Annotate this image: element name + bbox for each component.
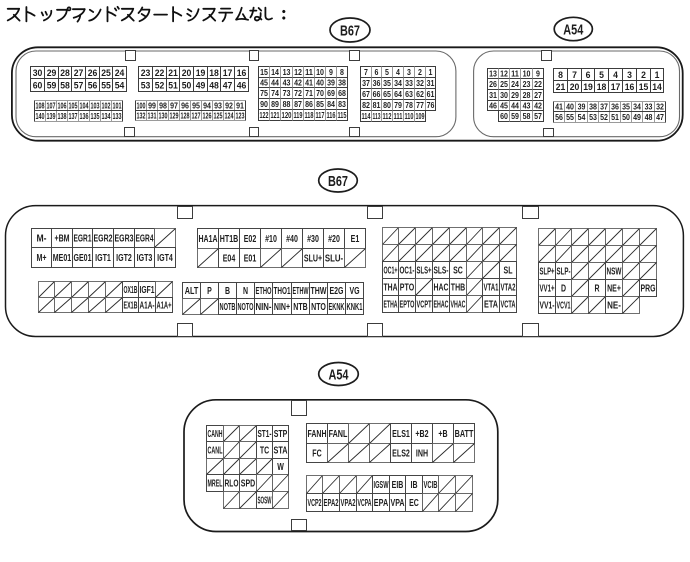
svg-text:64: 64 xyxy=(394,89,402,99)
svg-text:69: 69 xyxy=(327,88,335,98)
svg-text:37: 37 xyxy=(362,78,370,88)
svg-text:EGR4: EGR4 xyxy=(136,234,154,245)
svg-text:53: 53 xyxy=(589,112,597,122)
svg-text:SC: SC xyxy=(453,266,463,277)
svg-text:123: 123 xyxy=(236,110,245,120)
svg-text:IGSW: IGSW xyxy=(374,480,389,491)
svg-text:136: 136 xyxy=(80,111,89,121)
svg-text:STA: STA xyxy=(274,446,288,457)
svg-text:1: 1 xyxy=(429,67,433,77)
svg-text:4: 4 xyxy=(613,70,619,80)
svg-text:ALT: ALT xyxy=(185,286,199,297)
svg-text:A54: A54 xyxy=(329,367,349,384)
svg-text:SLS+: SLS+ xyxy=(417,266,432,277)
svg-text:54: 54 xyxy=(578,112,586,122)
svg-text:88: 88 xyxy=(283,99,291,109)
svg-text:127: 127 xyxy=(192,110,201,120)
svg-text:P: P xyxy=(207,286,212,297)
svg-text:42: 42 xyxy=(294,77,302,87)
svg-text:IGT1: IGT1 xyxy=(95,253,111,264)
svg-text:96: 96 xyxy=(181,100,189,110)
svg-text:81: 81 xyxy=(373,100,381,110)
svg-text:VHAC: VHAC xyxy=(451,300,466,311)
svg-text:VV1-: VV1- xyxy=(540,301,555,312)
svg-text:91: 91 xyxy=(236,100,244,110)
svg-text:33: 33 xyxy=(405,78,413,88)
svg-text:118: 118 xyxy=(305,110,314,120)
svg-text:93: 93 xyxy=(214,100,222,110)
svg-text:106: 106 xyxy=(58,100,67,110)
svg-text:11: 11 xyxy=(305,67,313,77)
svg-text:VTA1: VTA1 xyxy=(484,283,499,294)
svg-text:70: 70 xyxy=(316,88,324,98)
svg-text:5: 5 xyxy=(599,70,604,80)
svg-text:85: 85 xyxy=(316,99,324,109)
svg-text:EIB: EIB xyxy=(392,480,404,491)
svg-text:ELS1: ELS1 xyxy=(392,429,410,440)
svg-text:EPTO: EPTO xyxy=(400,300,415,311)
svg-text:59: 59 xyxy=(47,80,57,90)
svg-text:119: 119 xyxy=(294,110,303,120)
svg-text:34: 34 xyxy=(633,101,641,111)
svg-text:83: 83 xyxy=(338,99,346,109)
svg-text:77: 77 xyxy=(416,100,424,110)
svg-text:EC: EC xyxy=(409,498,419,509)
svg-text:26: 26 xyxy=(88,68,98,78)
svg-text:1: 1 xyxy=(655,70,660,80)
svg-text:ELS2: ELS2 xyxy=(392,449,410,460)
svg-text:68: 68 xyxy=(338,88,346,98)
svg-text:M-: M- xyxy=(36,234,46,245)
svg-text:45: 45 xyxy=(260,77,268,87)
svg-text:B67: B67 xyxy=(328,173,348,190)
svg-text:EGR1: EGR1 xyxy=(74,234,92,245)
svg-text:18: 18 xyxy=(209,68,219,78)
svg-text:NTO: NTO xyxy=(311,302,326,313)
svg-text:HT1B: HT1B xyxy=(220,234,238,245)
svg-text:98: 98 xyxy=(159,100,167,110)
svg-text:37: 37 xyxy=(600,101,608,111)
svg-text:54: 54 xyxy=(115,80,125,90)
svg-text:ETHW: ETHW xyxy=(293,286,309,297)
svg-text:114: 114 xyxy=(362,111,371,121)
svg-text:SPD: SPD xyxy=(241,479,255,490)
svg-text:56: 56 xyxy=(555,112,563,122)
svg-text:122: 122 xyxy=(260,110,269,120)
svg-text:SL: SL xyxy=(504,266,513,277)
svg-text:NIN-: NIN- xyxy=(256,302,272,313)
svg-text:45: 45 xyxy=(500,100,508,110)
svg-text:+B: +B xyxy=(438,429,447,440)
svg-text:7: 7 xyxy=(364,67,368,77)
svg-text:NOTO: NOTO xyxy=(238,302,254,313)
svg-text:17: 17 xyxy=(223,68,233,78)
svg-text:6: 6 xyxy=(586,70,591,80)
svg-text:63: 63 xyxy=(405,89,413,99)
svg-text:31: 31 xyxy=(489,90,497,100)
svg-text:12: 12 xyxy=(294,67,302,77)
svg-text:62: 62 xyxy=(416,89,424,99)
svg-text:103: 103 xyxy=(91,100,100,110)
svg-text:18: 18 xyxy=(597,82,607,92)
svg-text:EPA2: EPA2 xyxy=(324,498,339,509)
svg-text:VTA2: VTA2 xyxy=(501,283,516,294)
svg-text:125: 125 xyxy=(214,110,223,120)
svg-text:E2G: E2G xyxy=(329,286,343,297)
svg-text:25: 25 xyxy=(500,79,508,89)
svg-text:128: 128 xyxy=(181,110,190,120)
svg-text:101: 101 xyxy=(113,100,122,110)
svg-text:OC1+: OC1+ xyxy=(384,266,398,277)
svg-text:135: 135 xyxy=(91,111,100,121)
svg-text:28: 28 xyxy=(523,90,531,100)
svg-text:SLP+: SLP+ xyxy=(540,267,555,278)
svg-text:13: 13 xyxy=(489,68,497,78)
svg-text:SLP-: SLP- xyxy=(557,267,571,278)
svg-text:8: 8 xyxy=(340,67,344,77)
svg-text:21: 21 xyxy=(168,68,178,78)
svg-text:FANL: FANL xyxy=(329,429,348,440)
svg-text:#10: #10 xyxy=(265,234,277,245)
svg-text:VCPT: VCPT xyxy=(417,300,432,311)
svg-text:124: 124 xyxy=(225,110,234,120)
svg-text:60: 60 xyxy=(33,80,43,90)
svg-text:104: 104 xyxy=(80,100,89,110)
svg-text:82: 82 xyxy=(362,100,370,110)
svg-text:GE01: GE01 xyxy=(74,253,92,264)
svg-text:HAC: HAC xyxy=(434,283,449,294)
svg-text:VCIB: VCIB xyxy=(424,480,438,491)
svg-text:BATT: BATT xyxy=(455,429,474,440)
svg-text:22: 22 xyxy=(155,68,165,78)
svg-text:IGF1: IGF1 xyxy=(140,285,155,296)
svg-text:102: 102 xyxy=(102,100,111,110)
svg-text:71: 71 xyxy=(305,88,313,98)
svg-text:6: 6 xyxy=(375,67,379,77)
svg-text:57: 57 xyxy=(534,111,542,121)
svg-text:41: 41 xyxy=(555,101,563,111)
svg-text:OX1B: OX1B xyxy=(124,285,138,296)
svg-text:48: 48 xyxy=(209,80,219,90)
svg-text:M+: M+ xyxy=(36,253,46,264)
svg-text:D: D xyxy=(561,284,566,295)
svg-text:A1A-: A1A- xyxy=(140,301,155,312)
svg-text:EX1B: EX1B xyxy=(124,301,138,312)
svg-text:32: 32 xyxy=(656,101,664,111)
svg-text:78: 78 xyxy=(405,100,413,110)
svg-text:A1A+: A1A+ xyxy=(157,301,172,312)
svg-text:8: 8 xyxy=(558,70,563,80)
svg-text:ST1-: ST1- xyxy=(258,429,272,440)
svg-text:B: B xyxy=(225,286,230,297)
svg-text:53: 53 xyxy=(141,80,151,90)
svg-text:97: 97 xyxy=(170,100,178,110)
svg-text:IGT3: IGT3 xyxy=(137,253,153,264)
svg-text:46: 46 xyxy=(489,100,497,110)
svg-text:SLU+: SLU+ xyxy=(304,254,322,265)
svg-text:44: 44 xyxy=(511,100,519,110)
svg-text:SLU-: SLU- xyxy=(325,254,343,265)
svg-text:67: 67 xyxy=(362,89,370,99)
svg-text:90: 90 xyxy=(260,99,268,109)
svg-text:20: 20 xyxy=(182,68,192,78)
svg-text:RLO: RLO xyxy=(225,479,239,490)
svg-text:108: 108 xyxy=(36,100,45,110)
svg-text:20: 20 xyxy=(570,82,580,92)
svg-text:SOSW: SOSW xyxy=(258,496,272,507)
svg-text:VCV1: VCV1 xyxy=(557,301,571,312)
svg-text:NE-: NE- xyxy=(607,301,621,312)
svg-text:86: 86 xyxy=(305,99,313,109)
svg-text:27: 27 xyxy=(534,90,542,100)
svg-text:VCP2: VCP2 xyxy=(308,498,322,509)
svg-text:87: 87 xyxy=(294,99,302,109)
svg-text:32: 32 xyxy=(416,78,424,88)
svg-text:THO1: THO1 xyxy=(274,286,291,297)
svg-text:79: 79 xyxy=(394,100,402,110)
svg-text:2: 2 xyxy=(641,70,646,80)
svg-text:3: 3 xyxy=(407,67,411,77)
svg-text:89: 89 xyxy=(271,99,279,109)
svg-text:NE+: NE+ xyxy=(607,284,621,295)
svg-text:39: 39 xyxy=(327,77,335,87)
svg-text:THW: THW xyxy=(311,286,327,297)
svg-text:58: 58 xyxy=(523,111,531,121)
svg-text:29: 29 xyxy=(47,68,57,78)
svg-text:ETA: ETA xyxy=(484,300,498,311)
svg-text:24: 24 xyxy=(511,79,519,89)
svg-text:NSW: NSW xyxy=(607,267,622,278)
svg-text:NTB: NTB xyxy=(293,302,307,313)
svg-text:120: 120 xyxy=(282,110,292,120)
svg-text:34: 34 xyxy=(394,78,402,88)
svg-text:51: 51 xyxy=(611,112,619,122)
svg-text:48: 48 xyxy=(645,112,653,122)
svg-text:IGT2: IGT2 xyxy=(116,253,132,264)
svg-text:117: 117 xyxy=(316,110,325,120)
svg-text:56: 56 xyxy=(88,80,98,90)
svg-text:109: 109 xyxy=(416,111,425,121)
svg-text:E1: E1 xyxy=(351,234,360,245)
svg-text:B67: B67 xyxy=(340,23,360,40)
svg-text:140: 140 xyxy=(36,111,45,121)
svg-text:2: 2 xyxy=(418,67,422,77)
svg-text:40: 40 xyxy=(316,77,324,87)
svg-text:110: 110 xyxy=(405,111,414,121)
svg-text:31: 31 xyxy=(427,78,435,88)
svg-text:72: 72 xyxy=(294,88,302,98)
svg-text:95: 95 xyxy=(192,100,200,110)
svg-text:14: 14 xyxy=(652,82,662,92)
svg-text:10: 10 xyxy=(316,67,324,77)
svg-text:137: 137 xyxy=(69,111,78,121)
svg-text:132: 132 xyxy=(137,110,146,120)
svg-text:112: 112 xyxy=(383,111,392,121)
svg-text:47: 47 xyxy=(223,80,233,90)
svg-text:EHAC: EHAC xyxy=(434,300,449,311)
svg-text:THA: THA xyxy=(384,283,398,294)
svg-text:44: 44 xyxy=(271,77,279,87)
svg-text:TC: TC xyxy=(260,446,269,457)
svg-text:N: N xyxy=(243,286,248,297)
svg-text:61: 61 xyxy=(427,89,435,99)
svg-text:4: 4 xyxy=(396,67,400,77)
svg-text:23: 23 xyxy=(523,79,531,89)
svg-text:SLS-: SLS- xyxy=(434,266,449,277)
svg-text:80: 80 xyxy=(383,100,391,110)
svg-text:CANH: CANH xyxy=(208,429,223,440)
svg-text:FC: FC xyxy=(312,449,322,460)
svg-text:THB: THB xyxy=(451,283,465,294)
svg-text:EGR2: EGR2 xyxy=(94,234,113,245)
svg-text:NOTB: NOTB xyxy=(220,302,236,313)
svg-text:+B2: +B2 xyxy=(415,429,428,440)
svg-text:134: 134 xyxy=(102,111,111,121)
svg-text:E04: E04 xyxy=(223,254,236,265)
svg-text:115: 115 xyxy=(338,110,347,120)
svg-text:25: 25 xyxy=(101,68,111,78)
svg-text:#30: #30 xyxy=(307,234,319,245)
svg-text:41: 41 xyxy=(305,77,313,87)
svg-text:23: 23 xyxy=(141,68,151,78)
svg-text:59: 59 xyxy=(511,111,519,121)
svg-text:VV1+: VV1+ xyxy=(540,284,555,295)
svg-text:R: R xyxy=(594,284,600,295)
svg-text:22: 22 xyxy=(534,79,542,89)
svg-text:60: 60 xyxy=(500,111,508,121)
svg-text:13: 13 xyxy=(283,67,291,77)
svg-text:17: 17 xyxy=(611,82,621,92)
svg-text:49: 49 xyxy=(633,112,641,122)
svg-text:OC1-: OC1- xyxy=(400,266,415,277)
svg-text:129: 129 xyxy=(170,110,179,120)
svg-text:24: 24 xyxy=(115,68,125,78)
svg-text:38: 38 xyxy=(338,77,346,87)
svg-text:55: 55 xyxy=(566,112,574,122)
svg-text:107: 107 xyxy=(47,100,56,110)
svg-text:131: 131 xyxy=(148,110,157,120)
svg-text:19: 19 xyxy=(196,68,206,78)
svg-text:NIN+: NIN+ xyxy=(274,302,290,313)
svg-text:46: 46 xyxy=(237,80,247,90)
svg-text:ETHO: ETHO xyxy=(256,286,272,297)
svg-text:IB: IB xyxy=(411,480,418,491)
svg-text:VCPA: VCPA xyxy=(358,498,372,509)
svg-text:#40: #40 xyxy=(286,234,298,245)
svg-text:16: 16 xyxy=(625,82,635,92)
svg-text:EGR3: EGR3 xyxy=(115,234,134,245)
svg-text:92: 92 xyxy=(225,100,233,110)
svg-text:121: 121 xyxy=(271,110,280,120)
svg-text:STP: STP xyxy=(274,429,288,440)
svg-text:76: 76 xyxy=(427,100,435,110)
svg-text:5: 5 xyxy=(385,67,389,77)
svg-text:39: 39 xyxy=(578,101,586,111)
svg-text:KNK1: KNK1 xyxy=(347,302,363,313)
svg-text:36: 36 xyxy=(611,101,619,111)
svg-text:116: 116 xyxy=(327,110,336,120)
svg-text:50: 50 xyxy=(622,112,630,122)
svg-text:CANL: CANL xyxy=(208,446,223,457)
svg-text:28: 28 xyxy=(60,68,70,78)
svg-text:99: 99 xyxy=(148,100,156,110)
svg-text:133: 133 xyxy=(113,111,122,121)
svg-text:57: 57 xyxy=(74,80,84,90)
svg-text:58: 58 xyxy=(60,80,70,90)
svg-text:E02: E02 xyxy=(244,234,257,245)
svg-text:15: 15 xyxy=(260,67,268,77)
svg-text:49: 49 xyxy=(196,80,206,90)
svg-text:40: 40 xyxy=(566,101,574,111)
svg-text:FANH: FANH xyxy=(308,429,327,440)
svg-text:35: 35 xyxy=(622,101,630,111)
svg-text:ME01: ME01 xyxy=(53,253,72,264)
svg-text:A54: A54 xyxy=(563,22,583,39)
svg-text:27: 27 xyxy=(74,68,84,78)
svg-text:35: 35 xyxy=(383,78,391,88)
svg-text:138: 138 xyxy=(58,111,67,121)
svg-text:INH: INH xyxy=(416,449,428,460)
svg-text:51: 51 xyxy=(168,80,178,90)
svg-text:65: 65 xyxy=(383,89,391,99)
svg-text:16: 16 xyxy=(237,68,247,78)
svg-text:VG: VG xyxy=(349,286,359,297)
svg-text:ETHA: ETHA xyxy=(384,300,398,311)
svg-text:11: 11 xyxy=(511,68,519,78)
svg-text:94: 94 xyxy=(203,100,211,110)
svg-text:52: 52 xyxy=(600,112,608,122)
svg-text:36: 36 xyxy=(373,78,381,88)
svg-text:52: 52 xyxy=(155,80,165,90)
svg-text:43: 43 xyxy=(283,77,291,87)
svg-text:9: 9 xyxy=(536,68,540,78)
svg-text:3: 3 xyxy=(627,70,632,80)
svg-text:9: 9 xyxy=(329,67,333,77)
svg-text:111: 111 xyxy=(394,111,403,121)
svg-text:30: 30 xyxy=(500,90,508,100)
svg-text:E01: E01 xyxy=(244,254,257,265)
svg-text:10: 10 xyxy=(523,68,531,78)
svg-text:30: 30 xyxy=(33,68,43,78)
svg-text:113: 113 xyxy=(373,111,381,121)
svg-text:55: 55 xyxy=(101,80,111,90)
svg-text:74: 74 xyxy=(271,88,279,98)
svg-text:100: 100 xyxy=(137,100,146,110)
svg-text:38: 38 xyxy=(589,101,597,111)
svg-text:MREL: MREL xyxy=(208,479,223,490)
svg-text:IGT4: IGT4 xyxy=(157,253,173,264)
svg-text:19: 19 xyxy=(583,82,593,92)
svg-text:#20: #20 xyxy=(328,234,340,245)
svg-text:105: 105 xyxy=(69,100,78,110)
svg-text:47: 47 xyxy=(656,112,664,122)
svg-text:29: 29 xyxy=(511,90,519,100)
svg-text:VCTA: VCTA xyxy=(501,300,516,311)
svg-text:7: 7 xyxy=(572,70,577,80)
svg-text:14: 14 xyxy=(271,67,279,77)
svg-text:33: 33 xyxy=(645,101,653,111)
svg-text:HA1A: HA1A xyxy=(199,234,218,245)
svg-text:73: 73 xyxy=(283,88,291,98)
svg-text:84: 84 xyxy=(327,99,335,109)
svg-text:PTO: PTO xyxy=(400,283,415,294)
svg-text:139: 139 xyxy=(47,111,56,121)
svg-text:66: 66 xyxy=(373,89,381,99)
svg-text:43: 43 xyxy=(523,100,531,110)
svg-text:50: 50 xyxy=(182,80,192,90)
svg-text:12: 12 xyxy=(500,68,508,78)
svg-text:PRG: PRG xyxy=(641,284,656,295)
